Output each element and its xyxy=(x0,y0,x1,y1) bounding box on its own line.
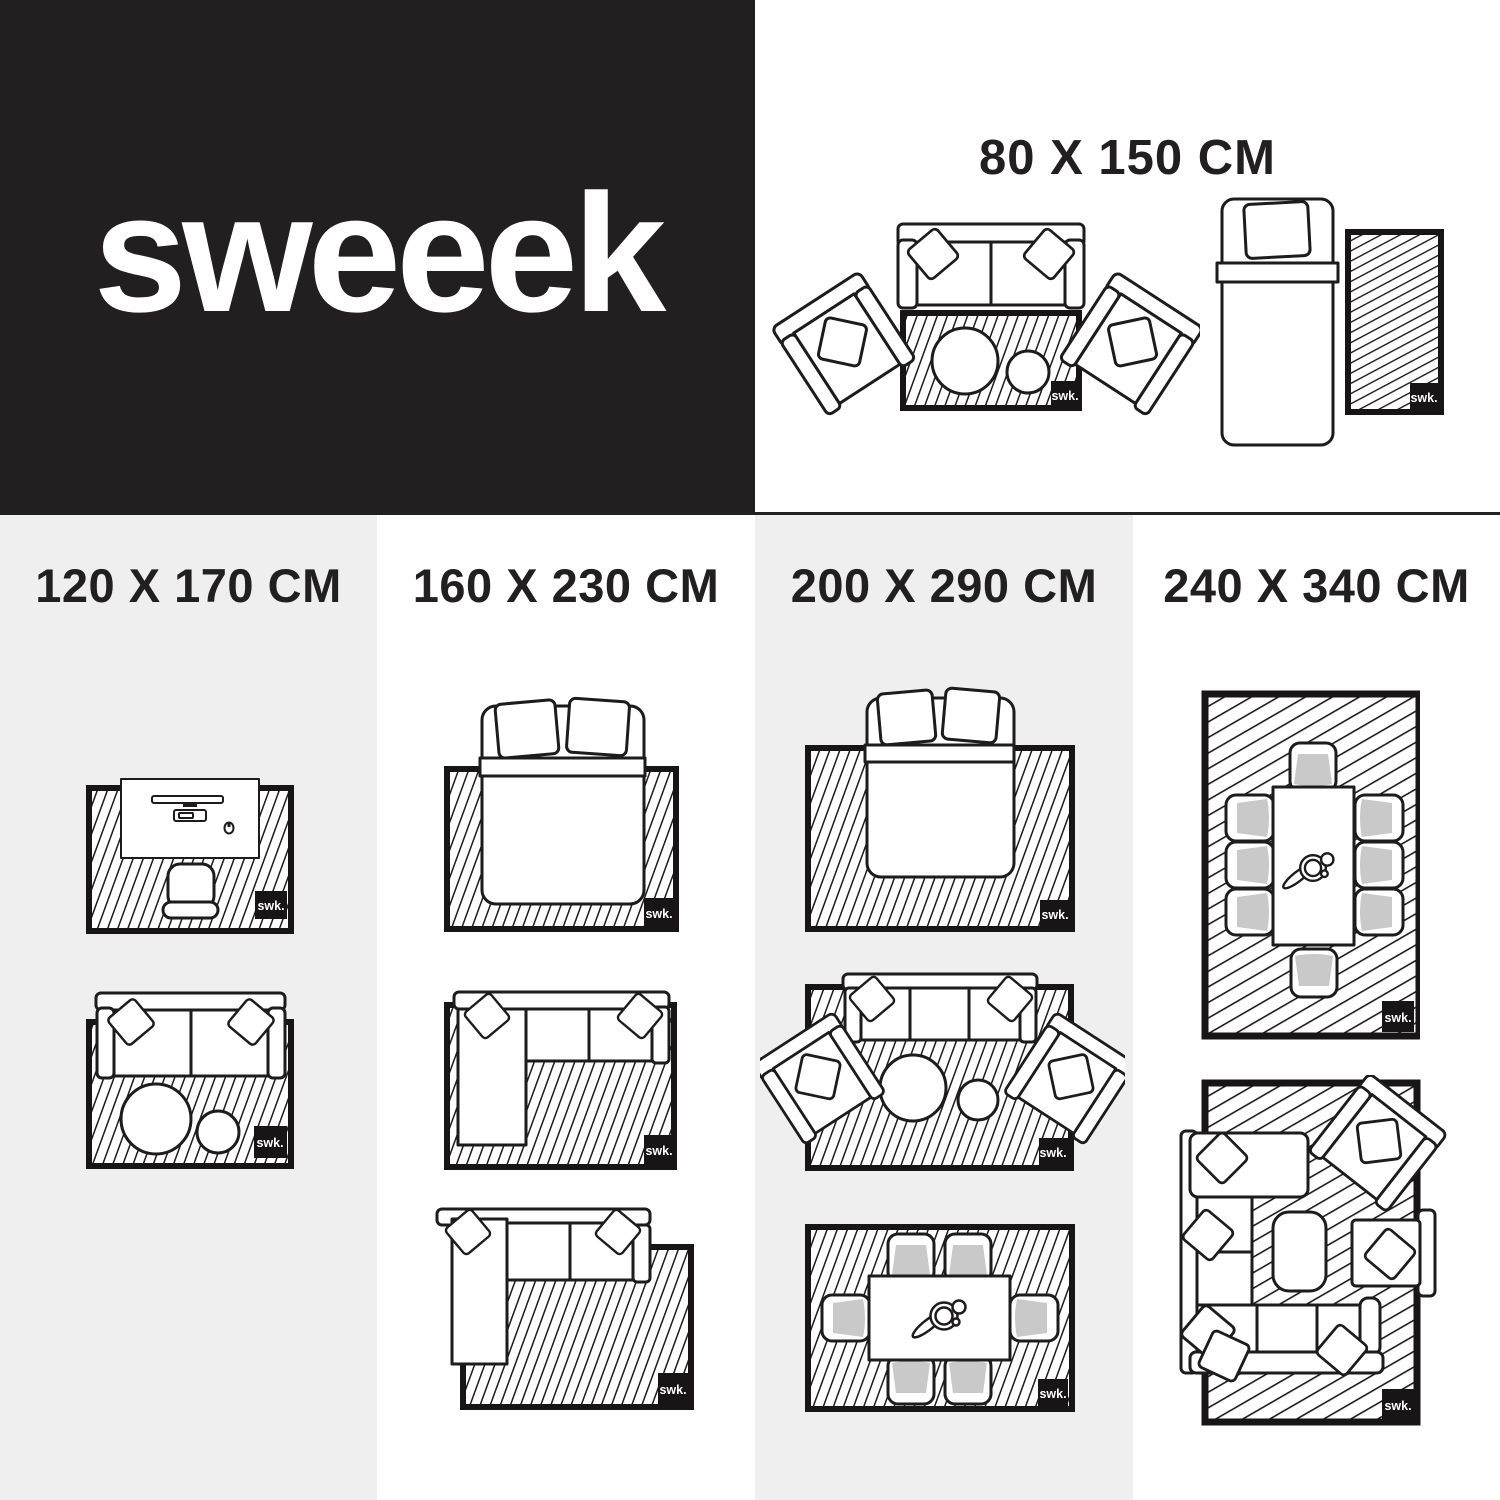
pillow xyxy=(1244,201,1311,258)
dining-chair xyxy=(1355,889,1403,935)
dining-chair xyxy=(1355,842,1403,888)
swk-badge: swk. xyxy=(1040,900,1071,928)
diagram-corner-sofa-1: swk. xyxy=(430,985,685,1180)
diagram-dining-240: swk. xyxy=(1195,690,1420,1040)
dining-chair xyxy=(1010,1295,1058,1341)
size-label-200x290: 200 X 290 CM xyxy=(755,559,1133,613)
hero-size-label: 80 X 150 CM xyxy=(755,131,1500,185)
office-chair xyxy=(163,864,218,918)
svg-text:swk.: swk. xyxy=(1039,1146,1066,1160)
swk-badge: swk. xyxy=(658,1373,689,1405)
monitor-icon xyxy=(152,796,223,803)
swk-badge: swk. xyxy=(1382,1389,1414,1421)
sofa xyxy=(898,224,1084,308)
dining-chair xyxy=(1291,949,1337,997)
armchair-mid-right xyxy=(1352,1210,1435,1296)
svg-text:swk.: swk. xyxy=(256,1136,283,1150)
size-label-160x230: 160 X 230 CM xyxy=(377,559,755,613)
pillow xyxy=(877,690,936,746)
swk-badge: swk. xyxy=(1410,383,1439,410)
coffee-table-large xyxy=(932,328,998,394)
brand-panel: sweeek xyxy=(0,0,755,515)
svg-text:swk.: swk. xyxy=(645,907,672,921)
diagram-hero-living: swk. xyxy=(770,190,1200,475)
diagram-hero-bed: swk. xyxy=(1205,195,1450,450)
single-bed xyxy=(1217,199,1338,445)
coffee-table xyxy=(1273,1212,1326,1291)
dining-chair xyxy=(1290,743,1336,791)
svg-text:swk.: swk. xyxy=(1384,1399,1411,1413)
dining-chair xyxy=(1226,842,1274,888)
swk-badge: swk. xyxy=(255,891,287,919)
diagram-living-200: swk. xyxy=(760,965,1125,1180)
swk-badge: swk. xyxy=(254,1126,287,1158)
dining-chair xyxy=(888,1356,934,1404)
coffee-table-small xyxy=(958,1080,998,1120)
swk-badge: swk. xyxy=(644,898,675,928)
rug-size-guide: sweeek 80 X 150 CM swk. xyxy=(0,0,1500,1500)
diagram-dining-200: swk. xyxy=(800,1220,1080,1420)
coffee-table-small xyxy=(1007,351,1049,393)
armchair-left xyxy=(772,272,916,416)
svg-text:swk.: swk. xyxy=(1041,908,1068,922)
pillow xyxy=(566,698,630,756)
dining-chair xyxy=(945,1356,991,1404)
brand-logo: sweeek xyxy=(0,158,755,348)
diagram-bed-200: swk. xyxy=(795,685,1085,940)
diagram-bed-160: swk. xyxy=(440,690,685,940)
coffee-table-large xyxy=(880,1055,946,1121)
dining-chair xyxy=(1226,889,1274,935)
svg-text:swk.: swk. xyxy=(1039,1387,1066,1401)
pillow xyxy=(942,688,1000,744)
diagram-corner-sofa-2: swk. xyxy=(425,1200,700,1420)
svg-text:swk.: swk. xyxy=(659,1383,686,1397)
diagram-living-240: swk. xyxy=(1170,1075,1450,1470)
swk-badge: swk. xyxy=(1382,1001,1414,1032)
svg-text:swk.: swk. xyxy=(1410,391,1437,405)
swk-badge: swk. xyxy=(1051,381,1079,408)
diagram-sofa-120: swk. xyxy=(80,985,300,1175)
dining-chair xyxy=(822,1295,870,1341)
double-bed xyxy=(480,698,645,904)
swk-badge: swk. xyxy=(1038,1379,1068,1408)
svg-text:swk.: swk. xyxy=(257,899,284,913)
dining-chair xyxy=(1355,795,1403,841)
diagram-desk: swk. xyxy=(80,770,300,945)
size-label-240x340: 240 X 340 CM xyxy=(1133,559,1500,613)
coffee-table-small xyxy=(197,1111,239,1153)
sofa xyxy=(843,974,1037,1042)
desk xyxy=(121,779,259,858)
swk-badge: swk. xyxy=(644,1135,675,1165)
double-bed xyxy=(865,688,1014,877)
size-label-120x170: 120 X 170 CM xyxy=(0,559,377,613)
svg-text:swk.: swk. xyxy=(1051,389,1078,403)
svg-text:swk.: swk. xyxy=(645,1144,672,1158)
monitor-stand-icon xyxy=(183,803,197,807)
pillow xyxy=(495,699,559,758)
svg-text:swk.: swk. xyxy=(1384,1011,1411,1025)
swk-badge: swk. xyxy=(1039,1138,1068,1166)
sofa xyxy=(96,993,285,1078)
coffee-table-large xyxy=(121,1084,191,1154)
dining-chair xyxy=(1226,795,1274,841)
